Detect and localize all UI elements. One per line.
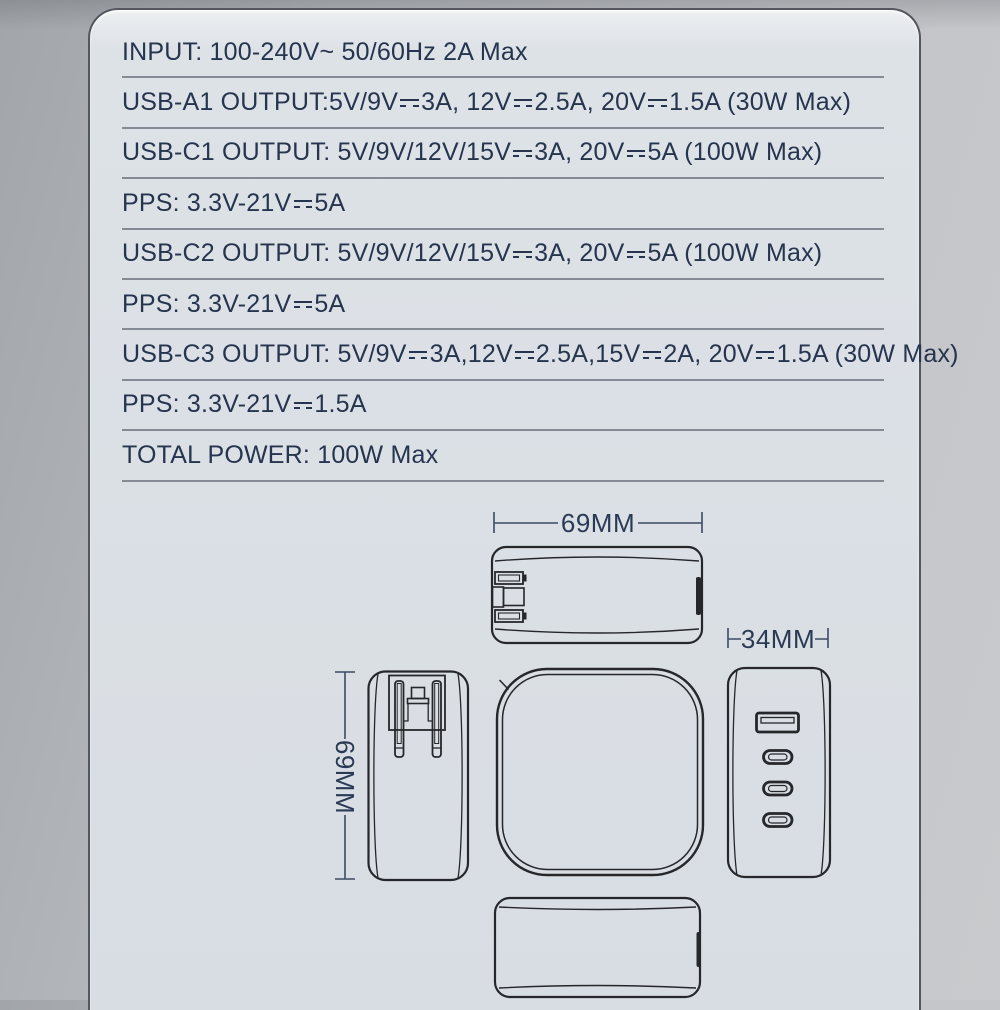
width-dimension-label: 69MM [561,508,635,538]
spec-text-pps-c1: PPS: 3.3V-21V5A [122,189,345,218]
dc-symbol [626,247,646,262]
usb-c2-port [764,782,793,795]
height-dimension: 69MM [330,672,360,879]
spec-text-usb-c1: USB-C1 OUTPUT: 5V/9V/12V/15V3A, 20V5A (1… [122,138,822,167]
dc-symbol [408,348,428,363]
front-view-drawing [497,669,703,875]
usb-c3-port [764,814,793,827]
dc-symbol [293,298,313,313]
bottom-view-slot [697,932,702,967]
width-dimension: 69MM [494,508,702,538]
dc-symbol [514,348,534,363]
ports-view-drawing [728,668,830,877]
spec-row-usb-c3: USB-C3 OUTPUT: 5V/9V3A,12V2.5A,15V2A, 20… [122,330,884,380]
dc-symbol [642,348,662,363]
dc-symbol [293,398,313,413]
dc-symbol [293,197,313,212]
spec-list: INPUT: 100-240V~ 50/60Hz 2A Max USB-A1 O… [122,28,884,482]
dc-symbol [626,146,646,161]
spec-text-input: INPUT: 100-240V~ 50/60Hz 2A Max [122,38,528,67]
bottom-view-drawing [495,898,701,997]
height-dimension-label: 69MM [330,740,360,814]
top-view-drawing [492,547,702,643]
dc-symbol [755,348,775,363]
depth-dimension-label: 34MM [741,624,815,654]
side-view-drawing [369,672,469,881]
spec-row-pps-c3: PPS: 3.3V-21V1.5A [122,381,884,431]
front-view-notch [500,680,509,690]
depth-dimension: 34MM [728,624,828,654]
spec-text-pps-c2: PPS: 3.3V-21V5A [122,290,345,319]
spec-text-usb-c3: USB-C3 OUTPUT: 5V/9V3A,12V2.5A,15V2A, 20… [122,340,959,369]
folded-plug-top [493,572,527,622]
spec-row-pps-c1: PPS: 3.3V-21V5A [122,179,884,229]
folding-plug-prongs [389,676,445,758]
top-view-slot [696,577,701,615]
spec-text-pps-c3: PPS: 3.3V-21V1.5A [122,390,367,419]
spec-row-usb-a1: USB-A1 OUTPUT:5V/9V3A, 12V2.5A, 20V1.5A … [122,78,884,128]
spec-text-total-power: TOTAL POWER: 100W Max [122,441,438,470]
spec-row-pps-c2: PPS: 3.3V-21V5A [122,280,884,330]
spec-text-usb-a1: USB-A1 OUTPUT:5V/9V3A, 12V2.5A, 20V1.5A … [122,88,851,117]
spec-card: INPUT: 100-240V~ 50/60Hz 2A Max USB-A1 O… [88,8,921,1010]
dc-symbol [513,247,533,262]
spec-text-usb-c2: USB-C2 OUTPUT: 5V/9V/12V/15V3A, 20V5A (1… [122,239,822,268]
dc-symbol [513,96,533,111]
spec-row-usb-c1: USB-C1 OUTPUT: 5V/9V/12V/15V3A, 20V5A (1… [122,129,884,179]
dc-symbol [648,96,668,111]
spec-row-usb-c2: USB-C2 OUTPUT: 5V/9V/12V/15V3A, 20V5A (1… [122,230,884,280]
usb-a-port [757,713,799,732]
spec-row-input: INPUT: 100-240V~ 50/60Hz 2A Max [122,28,884,78]
dc-symbol [513,146,533,161]
dimension-drawings: 69MM 69MM [90,490,1000,1010]
dc-symbol [400,96,420,111]
spec-row-total-power: TOTAL POWER: 100W Max [122,431,884,481]
usb-c1-port [764,751,793,764]
